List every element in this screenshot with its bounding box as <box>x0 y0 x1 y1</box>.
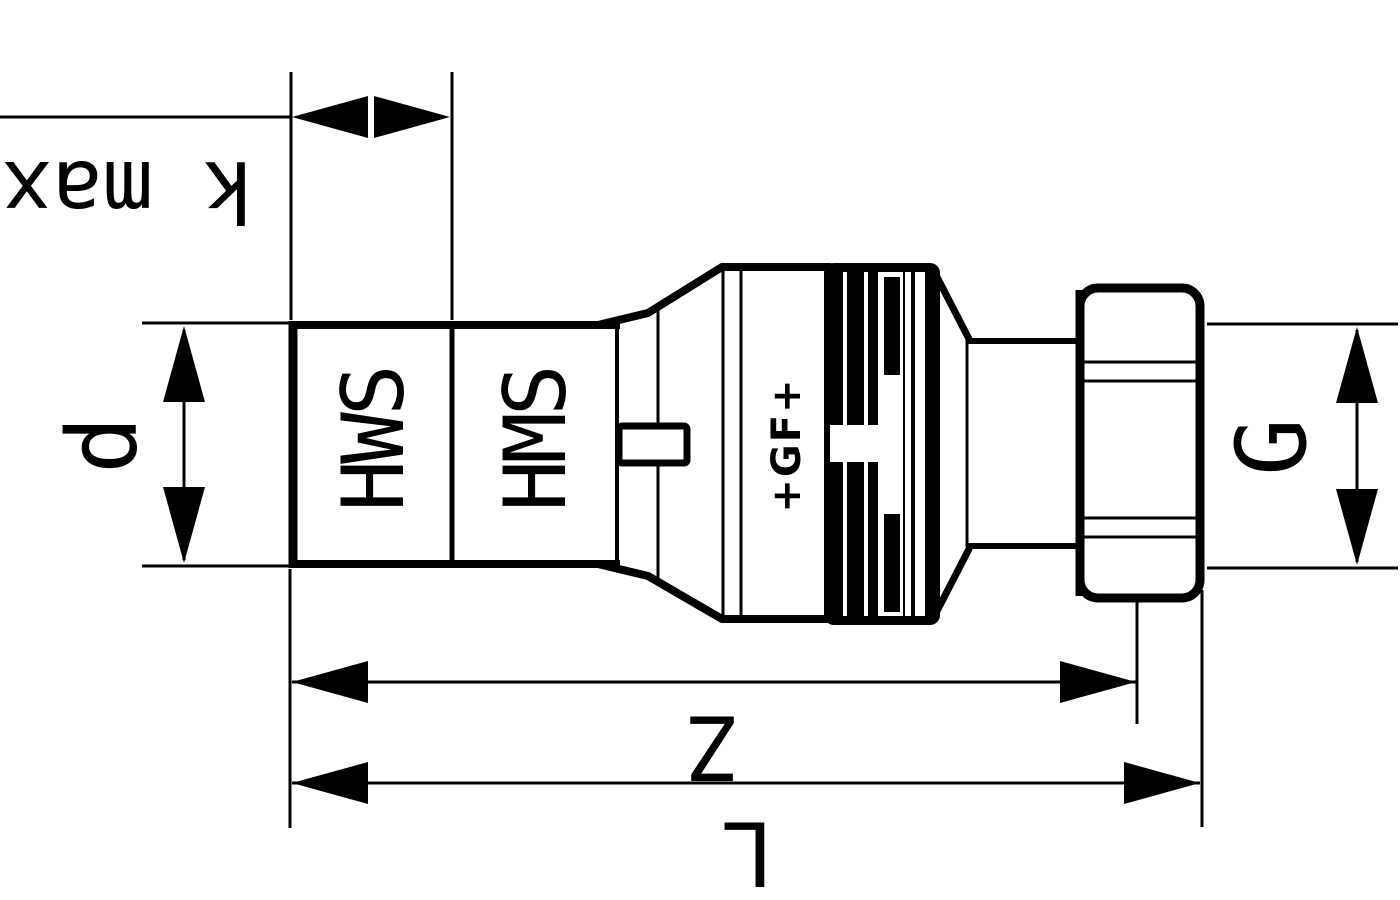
chamfer-edge-top <box>937 277 969 339</box>
dimension-d: d <box>47 323 290 566</box>
brand-logo: +GF+ <box>764 377 810 512</box>
inspection-window <box>619 426 687 463</box>
technical-drawing-canvas: k max d HWS HMS +GF+ <box>0 0 1400 900</box>
arrowhead-left <box>292 661 368 703</box>
arrowhead-down <box>163 487 205 563</box>
collet-cutout <box>830 425 903 462</box>
arrowhead-right <box>374 96 450 138</box>
l-label: L <box>721 802 774 900</box>
arrowhead-right <box>1060 661 1136 703</box>
union-nut <box>1078 288 1201 598</box>
g-label: G <box>1216 418 1328 476</box>
dimension-k-max: k max <box>0 72 452 320</box>
collet-tooth <box>884 514 900 612</box>
arrowhead-right <box>1124 762 1200 804</box>
k-max-label: k max <box>2 142 255 240</box>
fitting-midsection: +GF+ <box>598 267 830 619</box>
socket-body: HWS HMS <box>289 321 620 568</box>
taper-bottom-profile <box>598 564 830 619</box>
dimension-g: G <box>1207 324 1398 568</box>
nut-outline <box>1080 288 1200 598</box>
dimension-z: Z <box>290 569 1137 828</box>
taper-top-profile <box>598 267 830 325</box>
fitting-drawing-svg: k max d HWS HMS +GF+ <box>0 0 1400 900</box>
chamfer-edge-bottom <box>937 549 969 611</box>
arrowhead-up <box>1336 327 1378 403</box>
grip-ring <box>824 263 940 625</box>
hws-marking: HWS <box>324 368 424 511</box>
arrowhead-down <box>1336 489 1378 565</box>
neck-section <box>937 277 1080 611</box>
arrowhead-left <box>292 762 368 804</box>
arrowhead-left <box>292 96 368 138</box>
arrowhead-up <box>163 326 205 402</box>
hms-marking: HMS <box>486 368 586 511</box>
collet-tooth <box>884 277 900 375</box>
dimension-l: L <box>292 590 1202 900</box>
d-label: d <box>47 416 159 474</box>
ring-gap-line <box>911 272 915 616</box>
